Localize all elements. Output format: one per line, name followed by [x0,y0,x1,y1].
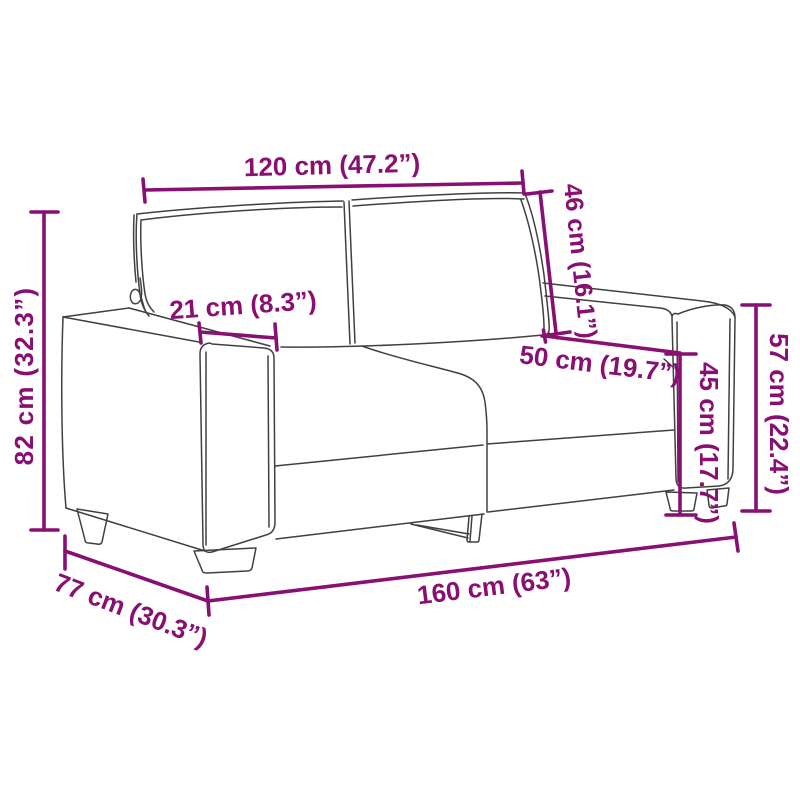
svg-text:120 cm (47.2”): 120 cm (47.2”) [243,148,420,183]
svg-text:45 cm (17.7”): 45 cm (17.7”) [694,362,724,524]
svg-text:82 cm (32.3”): 82 cm (32.3”) [9,287,39,466]
svg-text:57 cm (22.4”): 57 cm (22.4”) [764,333,794,495]
